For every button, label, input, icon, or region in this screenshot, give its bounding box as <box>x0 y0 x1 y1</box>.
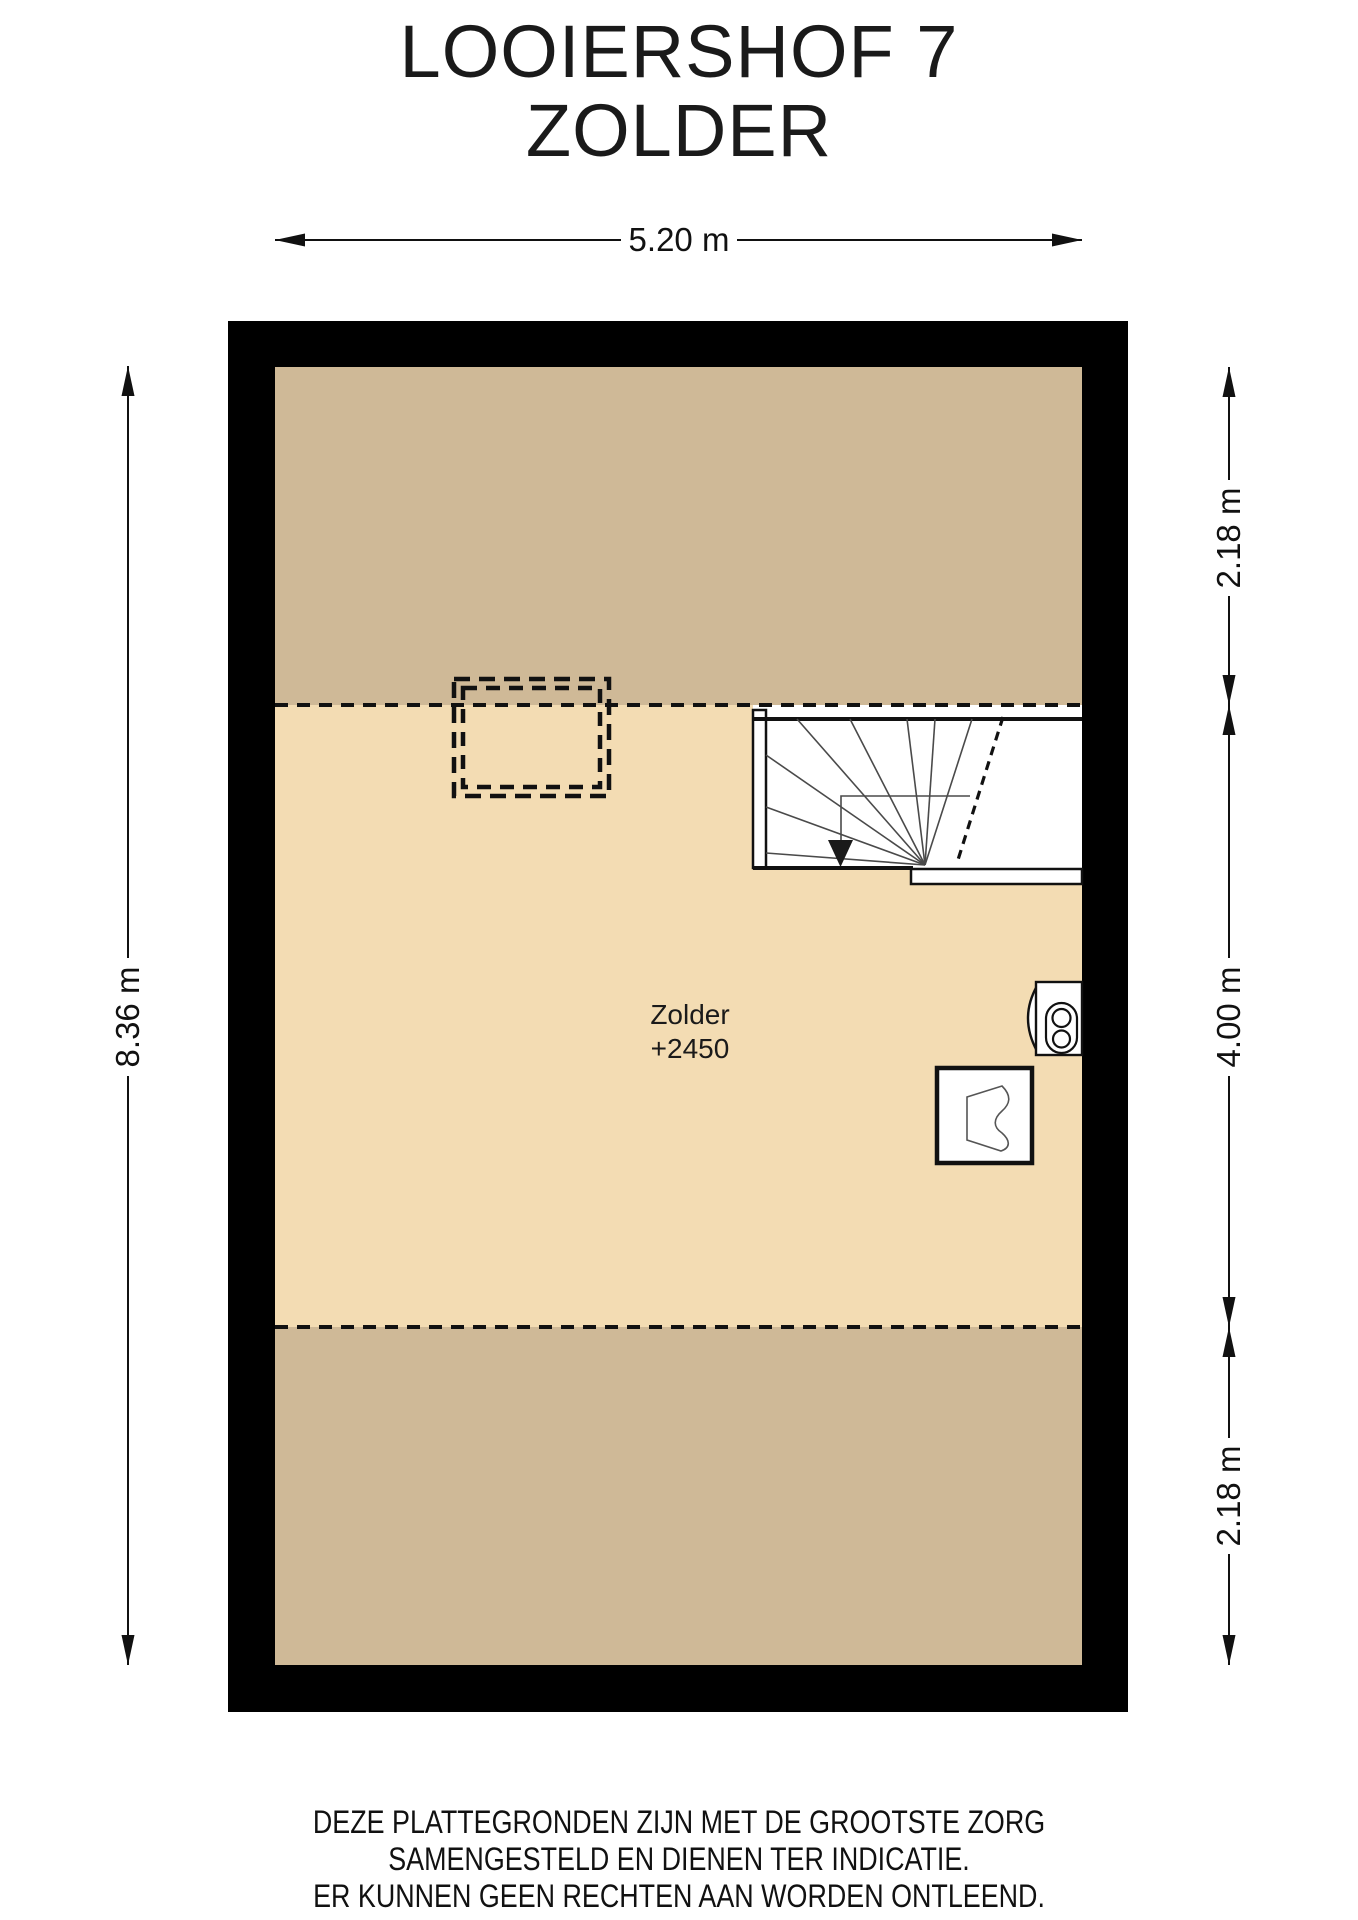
dimension-right-middle: 4.00 m <box>1210 705 1247 1327</box>
disclaimer-line: SAMENGESTELD EN DIENEN TER INDICATIE. <box>109 1841 1250 1878</box>
room-name: Zolder <box>650 999 729 1030</box>
floorplan-drawing: 5.20 m <box>0 0 1358 1920</box>
disclaimer-line: DEZE PLATTEGRONDEN ZIJN MET DE GROOTSTE … <box>109 1804 1250 1841</box>
mechanical-ventilation-unit-icon <box>937 1068 1032 1163</box>
winder-staircase <box>753 705 1082 884</box>
sloped-ceiling-zone-top <box>275 367 1082 705</box>
arrow-left-icon <box>275 234 305 247</box>
dimension-right-top: 2.18 m <box>1210 367 1247 705</box>
dimension-right-bottom-label: 2.18 m <box>1210 1446 1247 1547</box>
dimension-top-label: 5.20 m <box>629 221 730 258</box>
boiler-icon <box>1028 982 1082 1055</box>
sloped-ceiling-zone-bottom <box>275 1327 1082 1665</box>
dimension-right-top-label: 2.18 m <box>1210 488 1247 589</box>
dimension-left-height: 8.36 m <box>109 366 146 1665</box>
dimension-top-width: 5.20 m <box>275 221 1082 258</box>
disclaimer: DEZE PLATTEGRONDEN ZIJN MET DE GROOTSTE … <box>109 1804 1250 1920</box>
arrow-down-icon <box>122 1635 135 1665</box>
arrow-up-icon <box>122 366 135 396</box>
stair-newel-bar <box>753 710 766 868</box>
room-level: +2450 <box>651 1033 730 1064</box>
floorplan-page: LOOIERSHOF 7 ZOLDER 5.20 m <box>0 0 1358 1920</box>
disclaimer-line: ER KUNNEN GEEN RECHTEN AAN WORDEN ONTLEE… <box>109 1878 1250 1915</box>
disclaimer-copyright: © WWW.DROOMHUIS360.NL <box>109 1915 1250 1920</box>
stair-landing-edge <box>911 869 1082 884</box>
dimension-right-bottom: 2.18 m <box>1210 1327 1247 1665</box>
arrow-right-icon <box>1052 234 1082 247</box>
dimension-right-middle-label: 4.00 m <box>1210 967 1247 1068</box>
dimension-left-label: 8.36 m <box>109 967 146 1068</box>
